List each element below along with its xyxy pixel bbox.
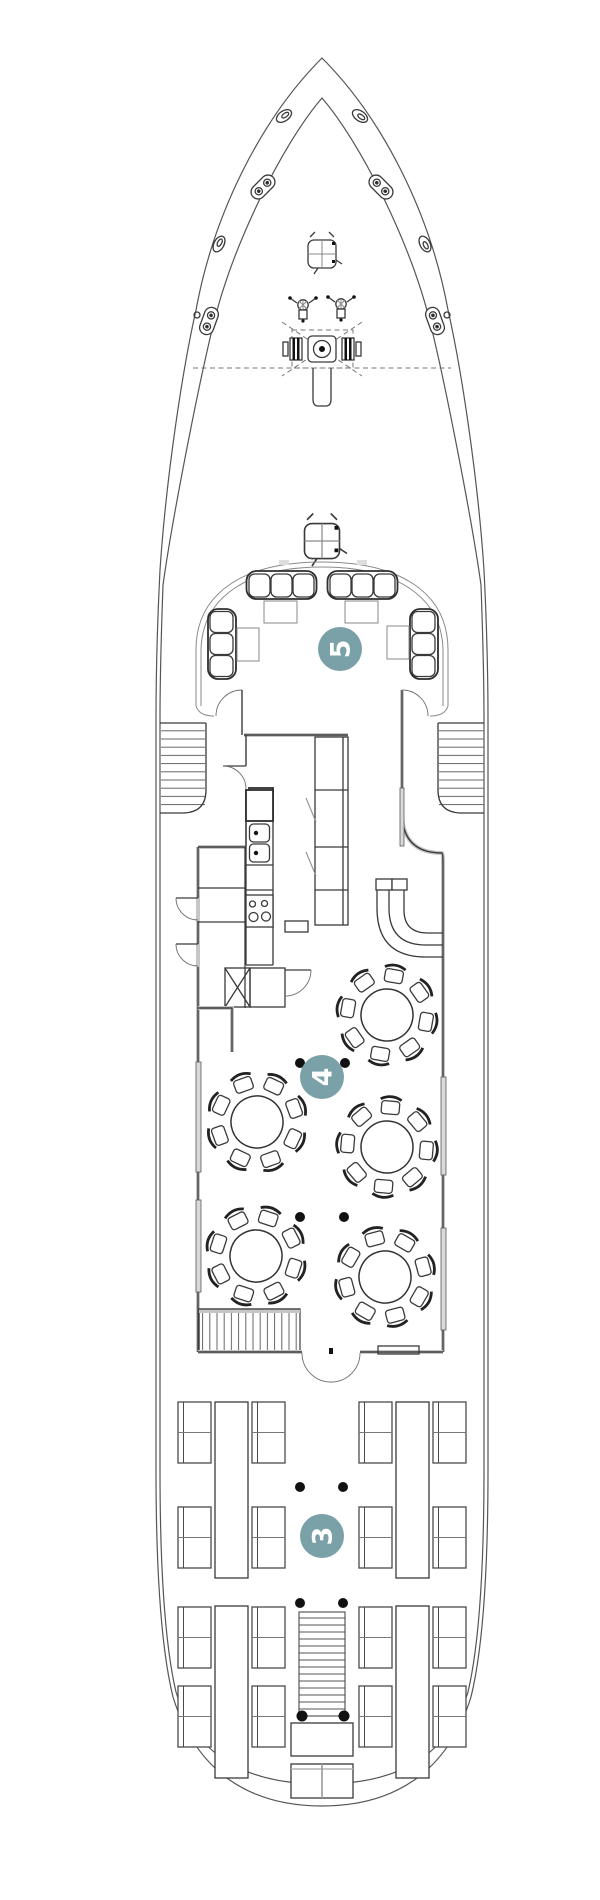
mooring-bitt-icon: [424, 305, 447, 336]
closet: [250, 968, 285, 1007]
dining-table: [316, 1208, 454, 1346]
anchor-windlass: [193, 322, 451, 406]
deck-3-badge: 3: [300, 1514, 344, 1558]
sun-lounger: [433, 1607, 466, 1668]
starboard-stairs: [438, 723, 484, 813]
dumbwaiter: [225, 968, 250, 1007]
sun-lounger: [433, 1402, 466, 1463]
pillar: [295, 1482, 305, 1492]
sofa: [247, 571, 317, 599]
window: [196, 1062, 201, 1172]
deck-3-label: 3: [308, 1527, 339, 1546]
window: [196, 1200, 201, 1292]
deck-4-badge: 4: [300, 1055, 344, 1099]
bar: [376, 879, 443, 957]
pillar: [340, 1058, 350, 1068]
cabinet: [246, 790, 273, 821]
sun-lounger: [252, 1402, 285, 1463]
mooring-bitt-icon: [366, 172, 396, 202]
deck-5-label: 5: [326, 640, 357, 659]
pillar: [338, 1598, 348, 1608]
sun-lounger: [433, 1507, 466, 1568]
sun-lounger: [252, 1507, 285, 1568]
window: [441, 1077, 446, 1175]
fairlead-icon: [211, 234, 228, 254]
sun-lounger: [359, 1686, 392, 1747]
mooring-bitt-icon: [248, 172, 278, 202]
sofa: [208, 609, 236, 679]
sofa: [410, 609, 438, 679]
sun-deck: 3: [178, 1402, 466, 1798]
forward-lounge: 5: [196, 560, 448, 735]
stern-bench: [291, 1764, 353, 1798]
dining-room: 4: [190, 956, 454, 1382]
sink: [250, 844, 270, 862]
dining-aft-wall: [198, 1348, 443, 1382]
fairlead-icon: [274, 107, 294, 125]
deck-platform: [396, 1402, 429, 1578]
sun-lounger: [252, 1607, 285, 1668]
deck-platform: [215, 1606, 248, 1778]
mooring-bitt-icon: [198, 305, 221, 336]
deck-4-label: 4: [308, 1068, 339, 1087]
stern-platform: [291, 1723, 353, 1756]
coffee-table: [345, 601, 378, 623]
winch-icon: [326, 295, 356, 321]
pillar: [295, 1598, 305, 1608]
fairlead-icon: [417, 234, 434, 254]
pillar: [295, 1212, 305, 1222]
sun-lounger: [178, 1507, 211, 1568]
sun-lounger: [178, 1686, 211, 1747]
galley-counter: [246, 790, 273, 965]
lounge-doors: [196, 690, 448, 735]
coffee-table: [387, 626, 409, 659]
buffet: [199, 1309, 300, 1351]
deck-platform: [215, 1402, 248, 1578]
fairlead-icon: [350, 107, 370, 125]
sofa: [328, 571, 398, 599]
sun-lounger: [359, 1402, 392, 1463]
window: [441, 1228, 446, 1330]
bow-fittings: [193, 107, 451, 566]
foredeck-hatch: [305, 514, 348, 567]
winch-icon: [288, 296, 318, 322]
deck-platform: [396, 1606, 429, 1778]
sun-lounger: [178, 1607, 211, 1668]
pass-island: [285, 921, 308, 932]
port-stairs: [160, 723, 206, 813]
dining-table: [192, 1192, 319, 1319]
sink: [250, 824, 270, 842]
dining-table: [332, 1092, 441, 1201]
sun-lounger: [252, 1686, 285, 1747]
ship-deck-plan: 5: [0, 0, 600, 1900]
window: [400, 788, 404, 846]
sun-lounger: [178, 1402, 211, 1463]
galley-cabinets: [306, 737, 348, 925]
dining-table: [328, 956, 445, 1073]
sun-lounger: [359, 1507, 392, 1568]
pillar: [339, 1212, 349, 1222]
coffee-table: [237, 628, 259, 661]
coffee-table: [264, 601, 297, 623]
sun-lounger: [433, 1686, 466, 1747]
aft-staircase: [297, 1612, 350, 1722]
sun-lounger: [359, 1607, 392, 1668]
stove: [246, 895, 273, 927]
bow-hatch: [308, 232, 342, 274]
deck-5-badge: 5: [318, 627, 362, 671]
pillar: [338, 1482, 348, 1492]
